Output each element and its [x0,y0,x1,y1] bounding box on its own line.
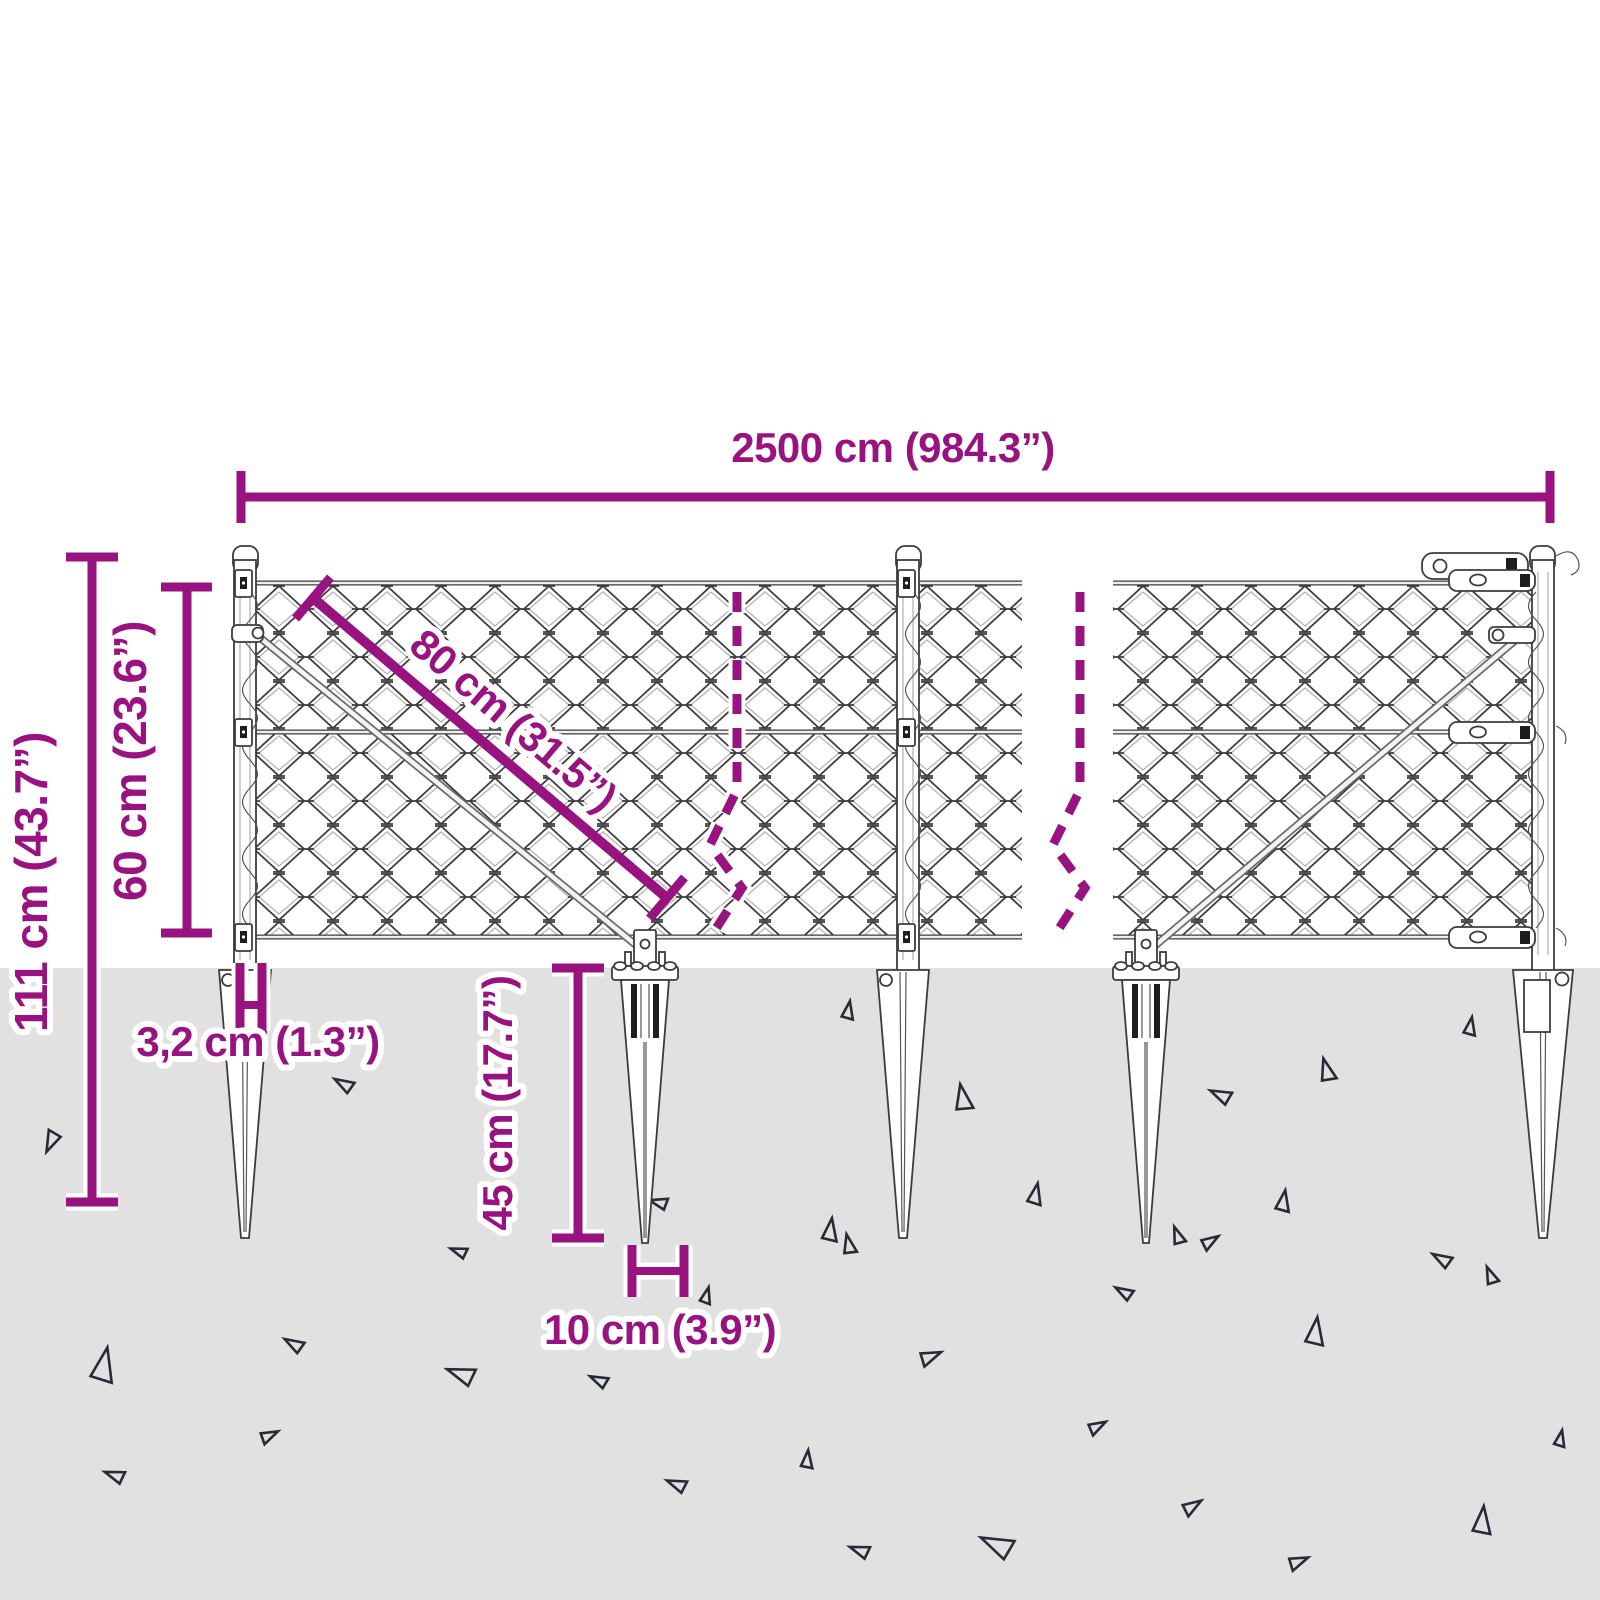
post-right [1532,560,1554,985]
total-height-label: 111 cm (43.7”) [5,732,57,1032]
clamp-bolt [1493,630,1504,641]
dimension-total-length: 2500 cm (984.3”) [241,424,1550,523]
spike-width-label: 10 cm (3.9”) [544,1306,776,1353]
mesh-height-label: 60 cm (23.6”) [104,621,156,901]
break-mark-right [1053,592,1085,935]
fence-dimension-diagram: 2500 cm (984.3”) 111 cm (43.7”) 60 cm (2… [0,0,1600,1600]
total-length-label: 2500 cm (984.3”) [731,424,1055,471]
clamp-bolt [253,628,264,639]
post-width-label: 3,2 cm (1.3”) [136,1018,379,1065]
chainlink-mesh-right [1113,585,1536,935]
dimension-mesh-height: 60 cm (23.6”) [104,587,212,933]
spike-depth-label: 45 cm (17.7”) [474,976,521,1231]
diagram-canvas: 2500 cm (984.3”) 111 cm (43.7”) 60 cm (2… [0,0,1600,1600]
